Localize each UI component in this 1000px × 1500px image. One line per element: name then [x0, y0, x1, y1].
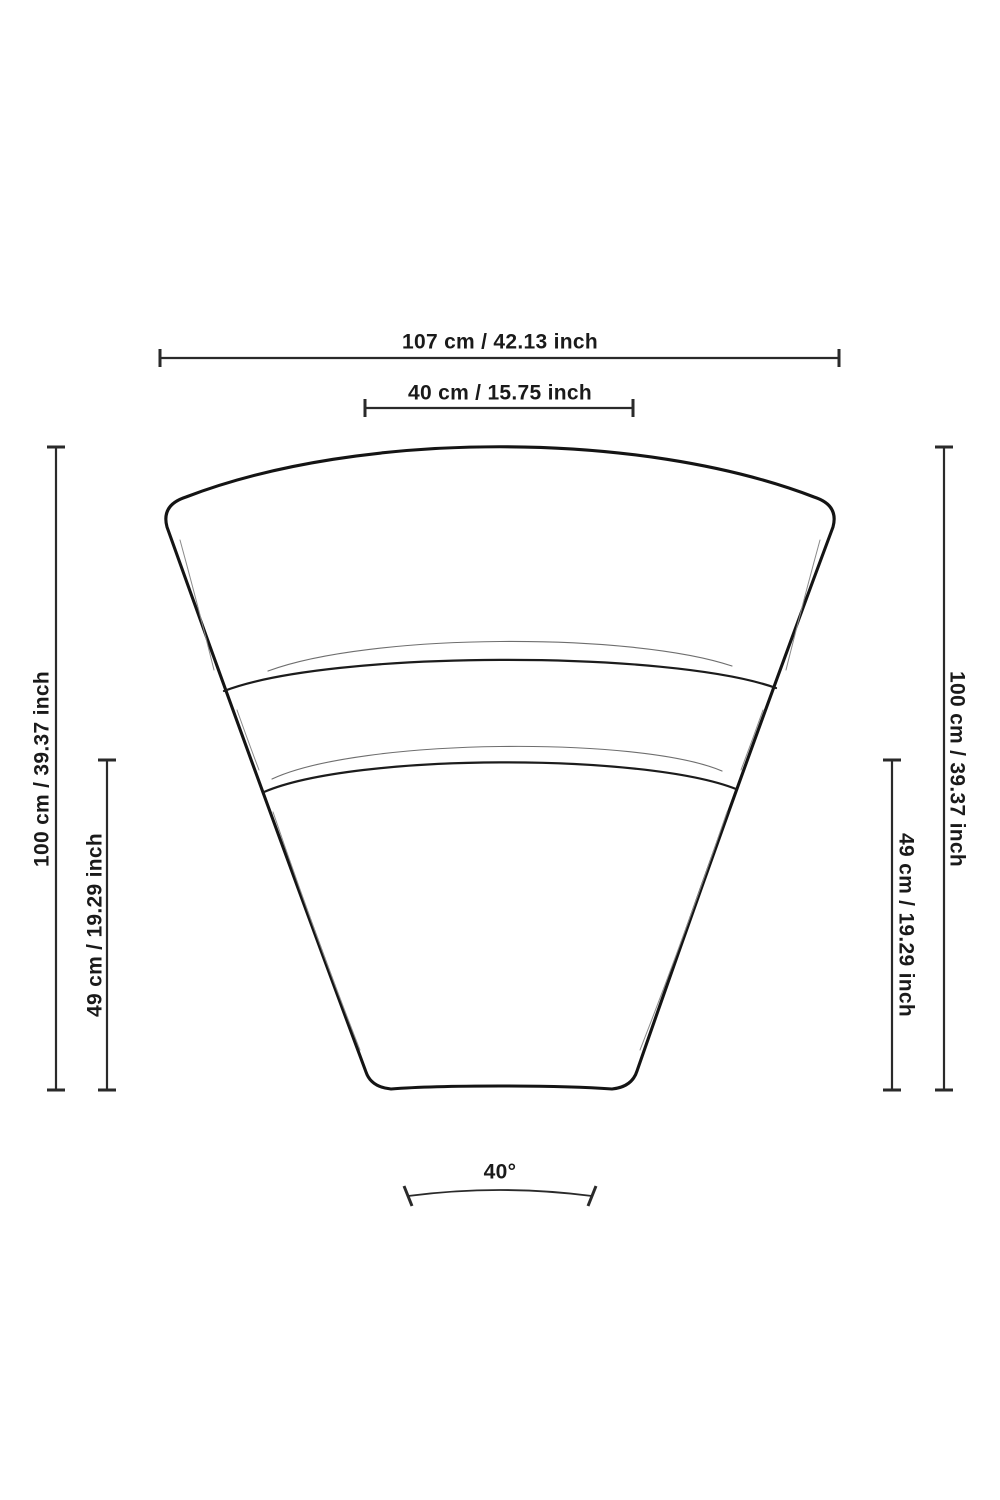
crease-left-top [180, 540, 214, 670]
dimension-lines [47, 349, 953, 1206]
dim-right-inner-label: 49 cm / 19.29 inch [896, 833, 917, 1017]
crease-left-middle [237, 710, 259, 770]
crease-left-bottom [273, 812, 360, 1050]
dim-angle [404, 1186, 596, 1206]
dim-top-inner-label: 40 cm / 15.75 inch [408, 383, 592, 404]
crease-right-top [786, 540, 820, 670]
sofa-outline [166, 447, 834, 1089]
seam-lower-shadow [264, 762, 736, 792]
dim-right-outer-label: 100 cm / 39.37 inch [947, 671, 968, 867]
seam-upper-shadow [224, 660, 776, 691]
diagram-artwork [0, 0, 1000, 1500]
sofa-segment-drawing [166, 447, 834, 1089]
dimension-diagram: 107 cm / 42.13 inch 40 cm / 15.75 inch 1… [0, 0, 1000, 1500]
dim-left-inner-label: 49 cm / 19.29 inch [85, 833, 106, 1017]
dim-left-outer-label: 100 cm / 39.37 inch [32, 671, 53, 867]
crease-right-middle [741, 710, 763, 770]
crease-right-bottom [640, 812, 727, 1050]
dim-angle-label: 40° [484, 1162, 517, 1183]
dim-top-outer-label: 107 cm / 42.13 inch [402, 332, 598, 353]
